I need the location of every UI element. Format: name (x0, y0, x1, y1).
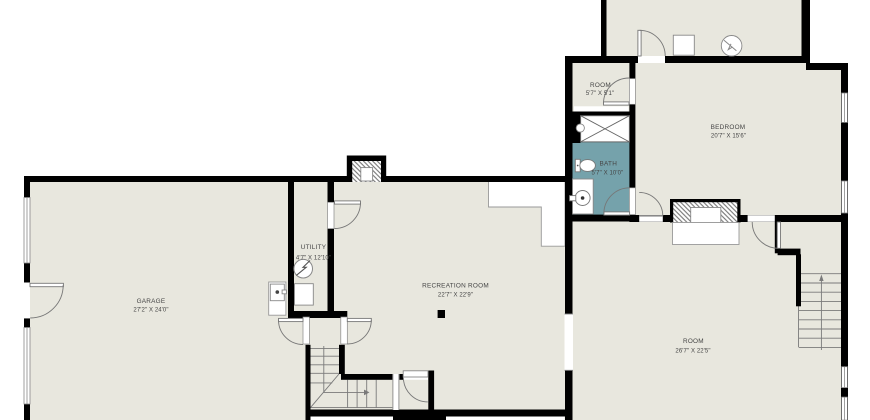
svg-text:RECREATION ROOM: RECREATION ROOM (422, 283, 489, 290)
svg-text:GARAGE: GARAGE (137, 298, 166, 305)
svg-text:4'7" X 12'10": 4'7" X 12'10" (296, 256, 331, 262)
svg-text:BATH: BATH (600, 161, 618, 168)
svg-text:27'2" X 24'0": 27'2" X 24'0" (133, 308, 168, 314)
svg-text:ROOM: ROOM (590, 82, 611, 89)
svg-text:20'7" X 15'6": 20'7" X 15'6" (711, 134, 746, 140)
svg-text:BEDROOM: BEDROOM (711, 124, 746, 131)
svg-text:ROOM: ROOM (683, 338, 704, 345)
svg-text:22'7" X 22'9": 22'7" X 22'9" (438, 292, 473, 298)
svg-text:5'7" X 5'1": 5'7" X 5'1" (586, 91, 614, 97)
svg-text:UTILITY: UTILITY (301, 244, 327, 251)
svg-text:5'7" X 10'0": 5'7" X 10'0" (592, 170, 624, 176)
svg-text:26'7" X 22'5": 26'7" X 22'5" (675, 348, 710, 354)
